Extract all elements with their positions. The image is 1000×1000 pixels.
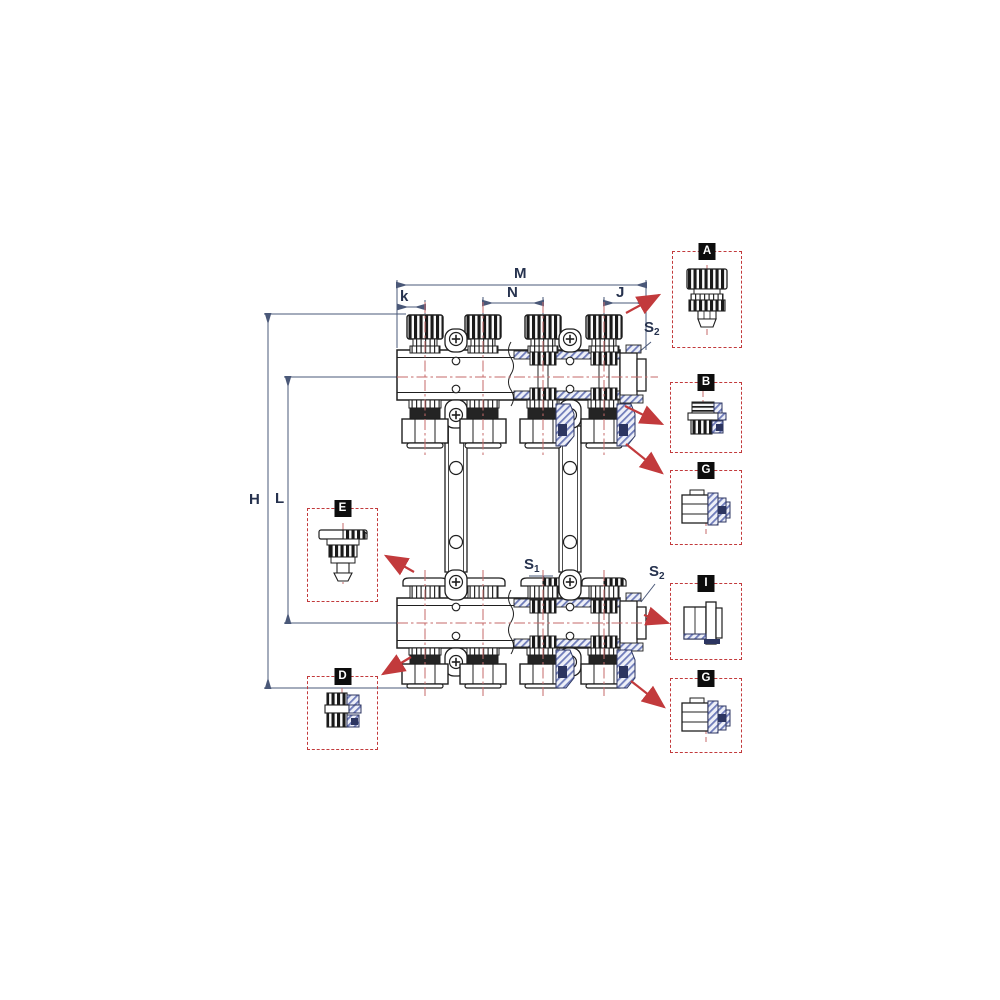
dim-label-left-offset: k: [400, 289, 408, 304]
s2-top-index: 2: [654, 327, 660, 338]
callout-chip-d: D: [334, 668, 351, 685]
union-fitting-detail: [676, 480, 736, 536]
wrench-label-s2-top: S2: [644, 320, 660, 338]
callout-chip-i: I: [698, 575, 715, 592]
callout-box-g-top: G: [670, 470, 742, 545]
adapter-fitting-detail: [676, 390, 736, 446]
end-plug-detail: [676, 593, 736, 651]
dim-label-outlet-pitch: N: [507, 285, 518, 300]
wrench-label-s2-bottom: S2: [649, 564, 665, 582]
dim-label-overall-width: M: [514, 266, 527, 281]
dim-label-overall-height: H: [249, 492, 260, 507]
wrench-label-s1: S1: [524, 557, 540, 575]
s1-letter: S: [524, 556, 534, 573]
callout-box-g-bottom: G: [670, 678, 742, 753]
dim-label-right-offset: J: [616, 285, 624, 300]
manifold-diagram-page: M k N J H L S1 S2 S2 A B: [0, 0, 1000, 1000]
s2-bottom-index: 2: [659, 571, 665, 582]
callout-box-d: D: [307, 676, 378, 750]
s2-bottom-letter: S: [649, 563, 659, 580]
callout-chip-e: E: [334, 500, 351, 517]
vent-valve-detail: [313, 522, 373, 588]
s1-index: 1: [534, 564, 540, 575]
callout-box-a: A: [672, 251, 742, 348]
s2-top-letter: S: [644, 319, 654, 336]
arrow-to-callout-g-bottom: [631, 681, 664, 707]
top-manifold-assembly: [397, 315, 646, 572]
callout-chip-b: B: [698, 374, 715, 391]
threaded-adapter-detail: [315, 687, 371, 739]
union-fitting-detail-2: [676, 688, 736, 744]
callout-chip-a: A: [699, 243, 716, 260]
arrow-to-callout-g-top: [626, 444, 662, 473]
callout-box-i: I: [670, 583, 742, 660]
arrow-to-callout-a: [626, 295, 659, 313]
callout-box-b: B: [670, 382, 742, 453]
manifold-technical-drawing: [0, 0, 1000, 1000]
callout-chip-g-bottom: G: [698, 670, 715, 687]
valve-insert-detail: [677, 263, 737, 337]
arrow-to-callout-e: [386, 556, 414, 572]
callout-chip-g-top: G: [698, 462, 715, 479]
lower-manifold-assembly: [397, 570, 646, 688]
callout-box-e: E: [307, 508, 378, 602]
arrow-to-callout-i: [644, 615, 668, 623]
dim-label-axis-distance: L: [275, 491, 284, 506]
